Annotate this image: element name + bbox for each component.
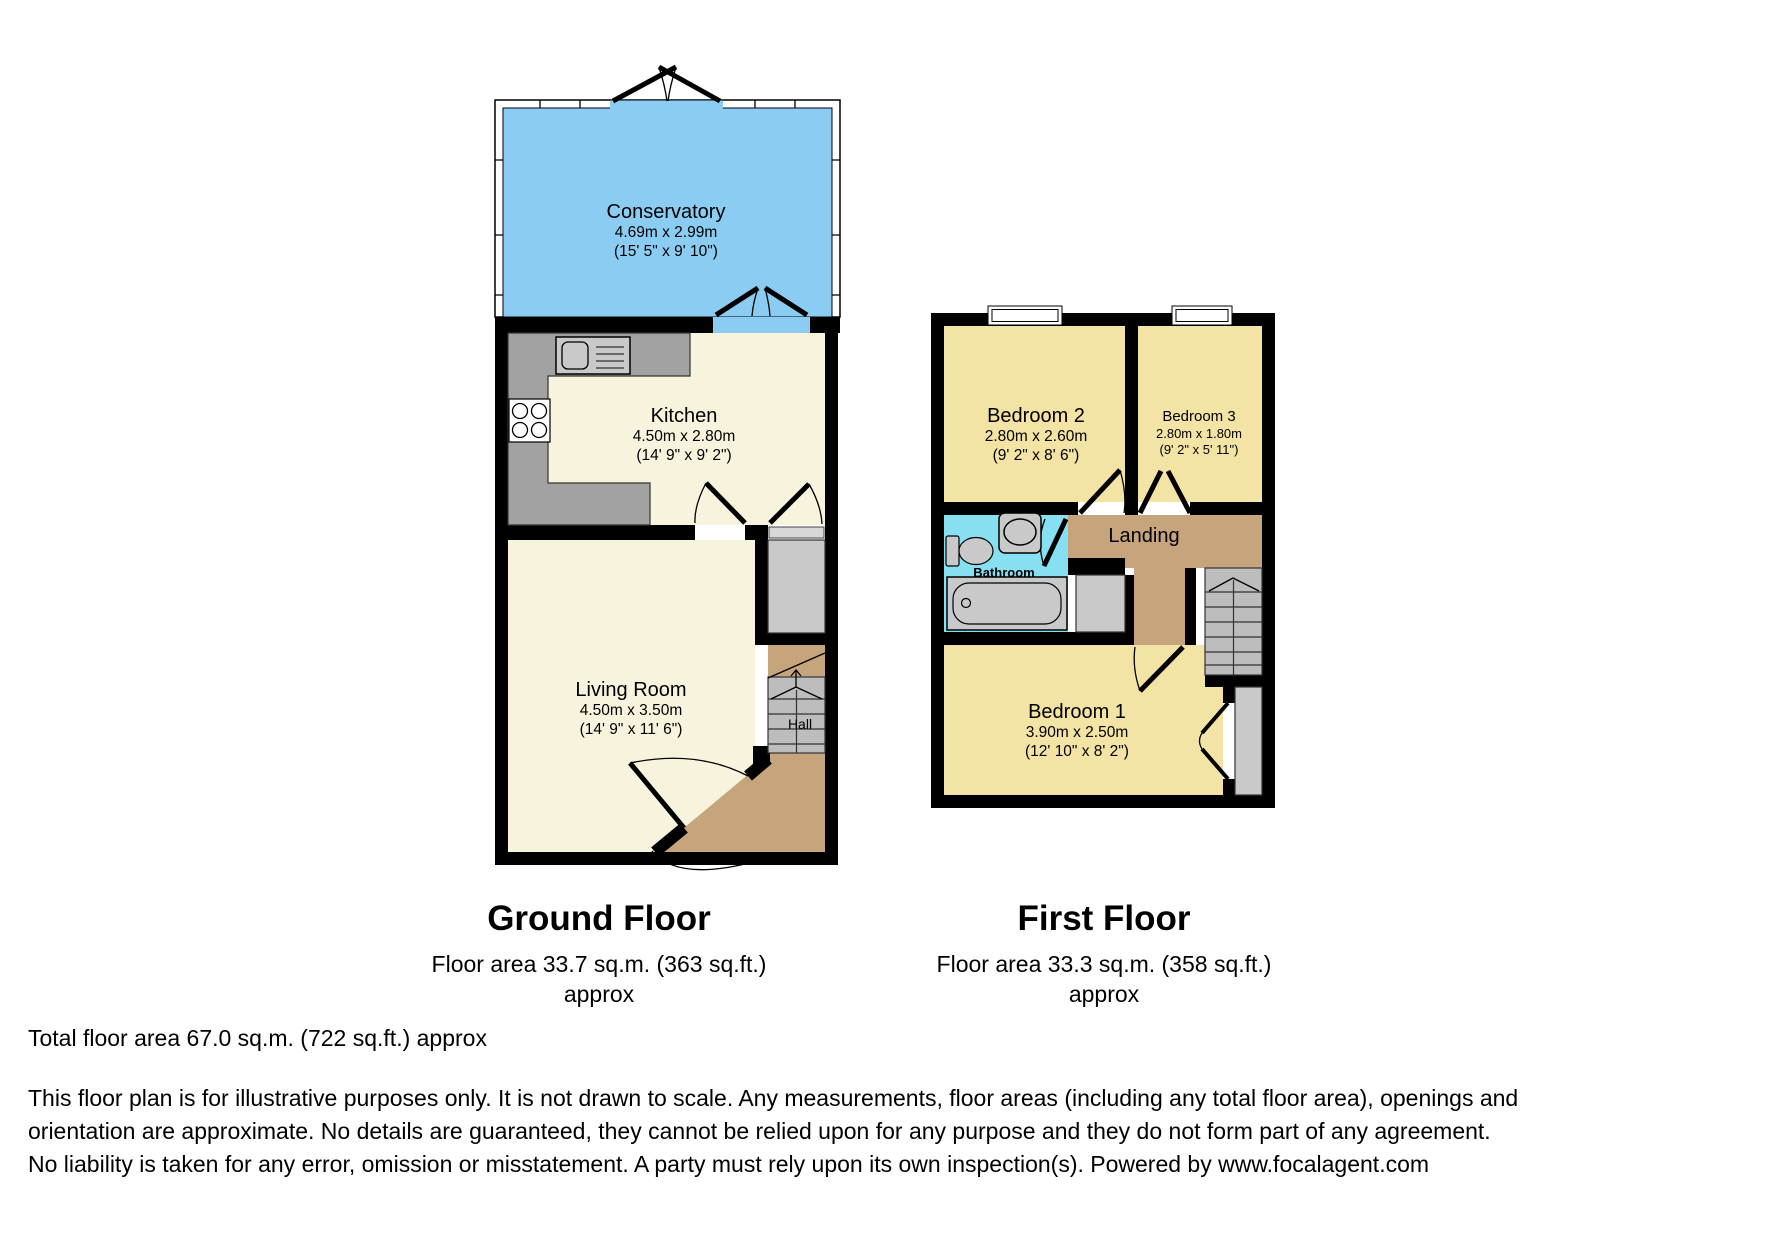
conservatory-room [495, 67, 840, 317]
room-label-bathroom: Bathroom [973, 565, 1034, 581]
recess [1235, 687, 1262, 795]
room-label-bedroom2: Bedroom 2 2.80m x 2.60m (9' 2" x 8' 6") [985, 404, 1088, 466]
room-label-bedroom3: Bedroom 3 2.80m x 1.80m (9' 2" x 5' 11") [1156, 408, 1242, 458]
cupboard-door [769, 527, 824, 538]
room-label-hall: Hall [788, 716, 812, 733]
room-label-conservatory: Conservatory 4.69m x 2.99m (15' 5" x 9' … [607, 200, 726, 262]
room-label-bedroom1: Bedroom 1 3.90m x 2.50m (12' 10" x 8' 2"… [1025, 700, 1129, 762]
room-label-kitchen: Kitchen 4.50m x 2.80m (14' 9" x 9' 2") [633, 404, 736, 466]
first-floor-title: First Floor [937, 899, 1272, 939]
disclaimer-text: This floor plan is for illustrative purp… [28, 1082, 1524, 1181]
landing-floor-2 [1134, 568, 1185, 645]
airing-cupboard [1076, 575, 1125, 632]
ground-floor-plan [488, 58, 848, 888]
staircase [1205, 568, 1262, 675]
bathtub-icon [947, 577, 1067, 630]
ground-floor-area: Floor area 33.7 sq.m. (363 sq.ft.) [432, 950, 767, 980]
door-opening [610, 100, 723, 109]
room-label-living-room: Living Room 4.50m x 3.50m (14' 9" x 11' … [575, 678, 686, 740]
basin-icon [999, 513, 1041, 553]
ground-floor-title: Ground Floor [432, 899, 767, 939]
ground-floor-caption: Ground Floor Floor area 33.7 sq.m. (363 … [432, 899, 767, 1010]
toilet-icon [946, 536, 993, 566]
first-floor-caption: First Floor Floor area 33.3 sq.m. (358 s… [937, 899, 1272, 1010]
conservatory-kitchen-opening [713, 317, 810, 333]
room-label-landing: Landing [1108, 524, 1179, 548]
hob-icon [509, 399, 550, 442]
total-floor-area: Total floor area 67.0 sq.m. (722 sq.ft.)… [28, 1025, 487, 1052]
first-floor-area: Floor area 33.3 sq.m. (358 sq.ft.) [937, 950, 1272, 980]
ground-floor-approx: approx [432, 980, 767, 1010]
sink-icon [556, 337, 630, 374]
first-floor-approx: approx [937, 980, 1272, 1010]
